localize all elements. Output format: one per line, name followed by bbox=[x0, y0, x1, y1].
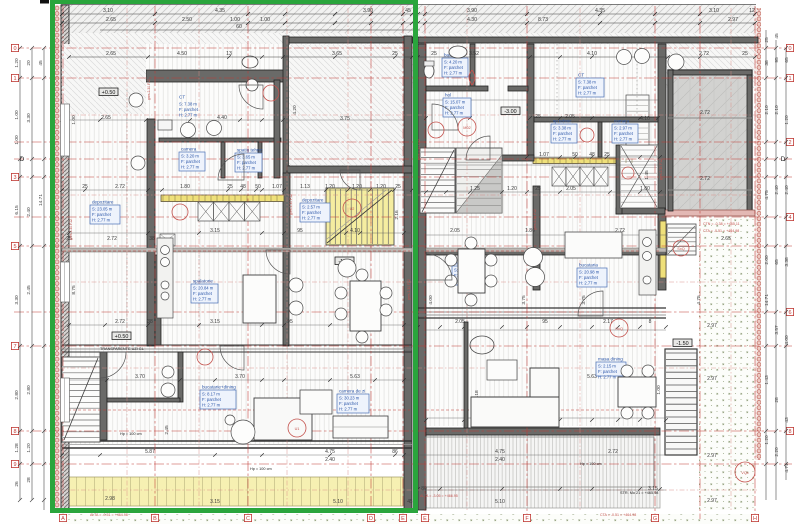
svg-text:S: 2.57 m: S: 2.57 m bbox=[302, 205, 320, 210]
svg-text:gres 2.30 F12: gres 2.30 F12 bbox=[289, 194, 293, 215]
svg-text:45: 45 bbox=[405, 8, 411, 14]
svg-text:45: 45 bbox=[774, 33, 780, 39]
svg-text:45: 45 bbox=[38, 60, 44, 66]
svg-text:G: G bbox=[653, 516, 657, 522]
svg-text:95: 95 bbox=[287, 319, 293, 325]
svg-text:25: 25 bbox=[82, 184, 88, 190]
svg-text:H: 2.77 m: H: 2.77 m bbox=[237, 166, 256, 171]
svg-text:depozitare: depozitare bbox=[302, 198, 324, 203]
svg-text:2.40: 2.40 bbox=[325, 457, 335, 463]
svg-text:65: 65 bbox=[784, 57, 790, 63]
svg-text:CTA = -0.51 = +464.98: CTA = -0.51 = +464.98 bbox=[703, 229, 739, 233]
svg-text:1.80: 1.80 bbox=[180, 184, 190, 190]
svg-text:3.30: 3.30 bbox=[26, 113, 32, 123]
svg-text:2.65: 2.65 bbox=[721, 236, 731, 242]
svg-text:H: 2.77 m: H: 2.77 m bbox=[202, 403, 221, 408]
svg-text:H: 2.77 m: H: 2.77 m bbox=[445, 111, 464, 116]
svg-text:1.00: 1.00 bbox=[230, 17, 240, 23]
svg-text:43: 43 bbox=[784, 417, 790, 423]
svg-text:14.71: 14.71 bbox=[764, 294, 770, 306]
svg-text:4.00: 4.00 bbox=[428, 295, 434, 305]
svg-text:1.00: 1.00 bbox=[71, 115, 77, 125]
svg-text:12: 12 bbox=[749, 8, 755, 14]
svg-text:86: 86 bbox=[392, 449, 398, 455]
svg-text:5.10: 5.10 bbox=[333, 499, 343, 505]
svg-text:4.35: 4.35 bbox=[215, 8, 225, 14]
svg-text:S: 7.38 m: S: 7.38 m bbox=[578, 80, 596, 85]
svg-text:1.20: 1.20 bbox=[376, 184, 386, 190]
svg-text:4.35: 4.35 bbox=[595, 8, 605, 14]
svg-text:H: H bbox=[753, 516, 757, 522]
svg-text:D: D bbox=[781, 156, 786, 163]
svg-text:gres 2.30 F12: gres 2.30 F12 bbox=[533, 209, 537, 230]
svg-text:S: 3.20 m: S: 3.20 m bbox=[181, 154, 199, 159]
svg-text:2.05: 2.05 bbox=[455, 319, 465, 325]
svg-text:S: 2.15 m: S: 2.15 m bbox=[598, 364, 616, 369]
svg-text:1.43: 1.43 bbox=[764, 375, 770, 385]
svg-text:1.00: 1.00 bbox=[14, 110, 20, 120]
svg-text:1.20: 1.20 bbox=[26, 443, 32, 453]
svg-text:2.72: 2.72 bbox=[700, 110, 710, 116]
svg-text:0: 0 bbox=[788, 46, 791, 52]
svg-text:2.10: 2.10 bbox=[774, 105, 780, 115]
svg-text:3.75: 3.75 bbox=[340, 116, 350, 122]
svg-text:4.71: 4.71 bbox=[784, 463, 790, 473]
svg-text:1.07: 1.07 bbox=[272, 184, 282, 190]
svg-text:3.15: 3.15 bbox=[210, 228, 220, 234]
svg-text:-3.00: -3.00 bbox=[504, 109, 516, 115]
svg-text:4.30: 4.30 bbox=[467, 17, 477, 23]
svg-text:25: 25 bbox=[764, 37, 770, 43]
svg-text:CTN = -0.38 = +465.11: CTN = -0.38 = +465.11 bbox=[703, 222, 740, 226]
svg-text:3.70: 3.70 bbox=[235, 374, 245, 380]
svg-text:2: 2 bbox=[788, 140, 791, 146]
svg-text:3.15: 3.15 bbox=[210, 499, 220, 505]
svg-text:hol: hol bbox=[445, 93, 451, 98]
svg-text:5: 5 bbox=[13, 244, 16, 250]
svg-text:3.15: 3.15 bbox=[210, 319, 220, 325]
svg-text:C: C bbox=[246, 516, 250, 522]
svg-text:5.10: 5.10 bbox=[495, 499, 505, 505]
svg-text:1.00: 1.00 bbox=[260, 17, 270, 23]
svg-text:U1: U1 bbox=[295, 427, 300, 431]
svg-text:masa dining: masa dining bbox=[598, 357, 623, 362]
svg-text:2.16: 2.16 bbox=[394, 210, 400, 220]
svg-text:S: 3.65 m: S: 3.65 m bbox=[237, 155, 255, 160]
svg-text:ALTA = -0.51 = +464.98: ALTA = -0.51 = +464.98 bbox=[90, 513, 128, 517]
svg-text:2.72: 2.72 bbox=[700, 176, 710, 182]
svg-text:20: 20 bbox=[26, 60, 32, 66]
svg-text:1: 1 bbox=[788, 76, 791, 82]
svg-text:26: 26 bbox=[14, 481, 20, 487]
svg-text:F: parchet: F: parchet bbox=[444, 65, 464, 70]
svg-text:H: 2.77 m: H: 2.77 m bbox=[579, 281, 598, 286]
svg-text:25: 25 bbox=[535, 114, 541, 120]
svg-text:+0.50: +0.50 bbox=[102, 90, 116, 96]
svg-text:0: 0 bbox=[13, 46, 16, 52]
svg-text:45: 45 bbox=[407, 499, 413, 505]
svg-text:25: 25 bbox=[395, 184, 401, 190]
svg-text:3.38: 3.38 bbox=[784, 257, 790, 267]
svg-text:4.10: 4.10 bbox=[350, 228, 360, 234]
svg-text:4.75: 4.75 bbox=[495, 449, 505, 455]
svg-text:F: parchet: F: parchet bbox=[578, 85, 598, 90]
svg-text:7: 7 bbox=[13, 344, 16, 350]
svg-text:S: 7.38 m: S: 7.38 m bbox=[179, 102, 197, 107]
svg-text:9: 9 bbox=[13, 462, 16, 468]
svg-text:D: D bbox=[369, 516, 373, 522]
svg-text:1.13: 1.13 bbox=[300, 184, 310, 190]
svg-text:38: 38 bbox=[149, 236, 155, 242]
svg-text:S: 20.98 m: S: 20.98 m bbox=[579, 270, 600, 275]
svg-text:4.00: 4.00 bbox=[784, 335, 790, 345]
svg-text:2.40: 2.40 bbox=[784, 185, 790, 195]
svg-text:8.75: 8.75 bbox=[71, 285, 77, 295]
svg-text:4.75: 4.75 bbox=[325, 449, 335, 455]
svg-text:2.98: 2.98 bbox=[105, 496, 115, 502]
svg-text:60: 60 bbox=[236, 24, 242, 30]
svg-text:F: parchet: F: parchet bbox=[179, 107, 199, 112]
svg-text:1.00: 1.00 bbox=[14, 135, 20, 145]
svg-text:-1.50: -1.50 bbox=[676, 341, 688, 347]
svg-text:S: 2.97 m: S: 2.97 m bbox=[614, 126, 632, 131]
svg-text:1.80: 1.80 bbox=[640, 186, 650, 192]
svg-text:1.20: 1.20 bbox=[14, 58, 20, 68]
svg-text:1.20: 1.20 bbox=[507, 186, 517, 192]
svg-text:2.20: 2.20 bbox=[774, 447, 780, 457]
svg-text:2.97: 2.97 bbox=[707, 453, 717, 459]
svg-text:8: 8 bbox=[13, 429, 16, 435]
svg-text:3.65: 3.65 bbox=[332, 51, 342, 57]
svg-text:ALTA = -3.05 = +466.95: ALTA = -3.05 = +466.95 bbox=[420, 494, 458, 498]
svg-text:camera: camera bbox=[181, 147, 197, 152]
svg-text:95: 95 bbox=[774, 57, 780, 63]
svg-text:4: 4 bbox=[788, 215, 791, 221]
svg-text:2.10: 2.10 bbox=[764, 105, 770, 115]
svg-text:F: parchet: F: parchet bbox=[614, 131, 634, 136]
svg-text:2.40: 2.40 bbox=[26, 207, 32, 217]
svg-text:F: parchet: F: parchet bbox=[181, 159, 201, 164]
svg-text:2.72: 2.72 bbox=[115, 184, 125, 190]
svg-text:25: 25 bbox=[392, 51, 398, 57]
svg-text:1.00: 1.00 bbox=[656, 385, 662, 395]
svg-text:gres 2.30 F12: gres 2.30 F12 bbox=[407, 279, 411, 300]
svg-text:F: parchet: F: parchet bbox=[339, 401, 359, 406]
svg-text:gres 2.30 F12: gres 2.30 F12 bbox=[659, 159, 663, 180]
svg-text:VQx: VQx bbox=[741, 471, 748, 475]
svg-text:U2: U2 bbox=[350, 207, 355, 211]
svg-text:E: E bbox=[401, 516, 405, 522]
svg-text:E: E bbox=[423, 516, 427, 522]
svg-text:2.97: 2.97 bbox=[707, 376, 717, 382]
svg-text:2.72: 2.72 bbox=[115, 319, 125, 325]
svg-text:80: 80 bbox=[421, 486, 427, 492]
svg-text:3.90: 3.90 bbox=[467, 8, 477, 14]
svg-text:S: 4.20 m: S: 4.20 m bbox=[444, 60, 462, 65]
svg-text:F: parchet: F: parchet bbox=[237, 160, 257, 165]
svg-text:8: 8 bbox=[788, 429, 791, 435]
svg-text:S: 30.23 m: S: 30.23 m bbox=[339, 396, 360, 401]
svg-text:gres 2.30 F12: gres 2.30 F12 bbox=[147, 79, 151, 100]
svg-text:3.30: 3.30 bbox=[14, 295, 20, 305]
svg-text:M02: M02 bbox=[463, 126, 470, 130]
svg-text:H: 2.77 m: H: 2.77 m bbox=[578, 91, 597, 96]
svg-text:1.20: 1.20 bbox=[764, 435, 770, 445]
svg-text:50: 50 bbox=[255, 184, 261, 190]
svg-text:F: parchet: F: parchet bbox=[598, 369, 618, 374]
svg-text:28: 28 bbox=[26, 477, 32, 483]
svg-text:STR. Mo 21 = +465.98: STR. Mo 21 = +465.98 bbox=[620, 491, 658, 495]
svg-text:H: 2.77 m: H: 2.77 m bbox=[614, 137, 633, 142]
svg-text:2.40: 2.40 bbox=[495, 457, 505, 463]
svg-text:8: 8 bbox=[649, 319, 652, 325]
svg-text:F: parchet: F: parchet bbox=[193, 291, 213, 296]
svg-text:F: parchet: F: parchet bbox=[579, 275, 599, 280]
svg-text:F: parchet: F: parchet bbox=[202, 397, 222, 402]
svg-text:bucatarie+dining: bucatarie+dining bbox=[202, 385, 236, 390]
svg-text:SxQ: SxQ bbox=[677, 247, 684, 251]
svg-text:2.00: 2.00 bbox=[764, 255, 770, 265]
svg-text:2.72: 2.72 bbox=[608, 449, 618, 455]
svg-text:3.10: 3.10 bbox=[709, 8, 719, 14]
svg-text:Hp = 100 cm: Hp = 100 cm bbox=[580, 462, 602, 466]
svg-text:H: 2.77 m: H: 2.77 m bbox=[92, 218, 111, 223]
svg-text:TRANSPARENTE UZI GL: TRANSPARENTE UZI GL bbox=[100, 347, 144, 351]
svg-text:4.20: 4.20 bbox=[292, 105, 298, 115]
svg-text:5.63: 5.63 bbox=[587, 374, 597, 380]
svg-text:5.63: 5.63 bbox=[350, 374, 360, 380]
svg-text:gres 2.30 F12: gres 2.30 F12 bbox=[69, 219, 73, 240]
svg-text:2.97: 2.97 bbox=[707, 498, 717, 504]
svg-text:4.10: 4.10 bbox=[587, 51, 597, 57]
svg-text:3.10: 3.10 bbox=[103, 8, 113, 14]
svg-text:bucataria: bucataria bbox=[579, 263, 598, 268]
svg-text:65: 65 bbox=[774, 259, 780, 265]
svg-text:4.40: 4.40 bbox=[217, 115, 227, 121]
svg-text:H: 2.77 m: H: 2.77 m bbox=[553, 137, 572, 142]
svg-text:13: 13 bbox=[226, 51, 232, 57]
svg-text:1.20: 1.20 bbox=[784, 115, 790, 125]
svg-text:H: 2.77 m: H: 2.77 m bbox=[444, 71, 463, 76]
svg-text:2.45: 2.45 bbox=[26, 285, 32, 295]
svg-text:2.05: 2.05 bbox=[450, 228, 460, 234]
svg-text:8.73: 8.73 bbox=[538, 17, 548, 23]
svg-text:CT: CT bbox=[578, 73, 584, 78]
svg-text:+0.50: +0.50 bbox=[115, 334, 129, 340]
svg-text:2.80: 2.80 bbox=[26, 385, 32, 395]
svg-text:1.45: 1.45 bbox=[644, 170, 650, 180]
svg-text:4.10: 4.10 bbox=[640, 116, 650, 122]
svg-text:camara: camara bbox=[614, 119, 630, 124]
svg-text:1.28: 1.28 bbox=[14, 443, 20, 453]
svg-text:2.17: 2.17 bbox=[603, 319, 613, 325]
svg-text:2.40: 2.40 bbox=[774, 185, 780, 195]
svg-text:F: parchet: F: parchet bbox=[92, 212, 112, 217]
svg-text:2.65: 2.65 bbox=[106, 17, 116, 23]
svg-text:3.70: 3.70 bbox=[135, 374, 145, 380]
svg-text:95: 95 bbox=[542, 319, 548, 325]
svg-text:25: 25 bbox=[742, 51, 748, 57]
svg-text:A: A bbox=[61, 516, 65, 522]
svg-text:Hp = 100 cm: Hp = 100 cm bbox=[120, 432, 142, 436]
svg-text:2.97: 2.97 bbox=[707, 323, 717, 329]
svg-text:F: parchet: F: parchet bbox=[553, 131, 573, 136]
svg-text:14.71: 14.71 bbox=[38, 194, 44, 206]
svg-text:D: D bbox=[20, 156, 25, 163]
svg-text:H: 2.77 m: H: 2.77 m bbox=[181, 165, 200, 170]
svg-text:spatiu tehnic: spatiu tehnic bbox=[237, 148, 263, 153]
svg-text:F: parchet: F: parchet bbox=[302, 210, 322, 215]
svg-text:S: 8.17 m: S: 8.17 m bbox=[202, 392, 220, 397]
svg-text:2.72: 2.72 bbox=[107, 236, 117, 242]
svg-text:spalatorie: spalatorie bbox=[193, 279, 213, 284]
svg-text:28: 28 bbox=[774, 397, 780, 403]
svg-text:2.05: 2.05 bbox=[566, 186, 576, 192]
svg-text:3.52: 3.52 bbox=[469, 51, 479, 57]
svg-text:6: 6 bbox=[788, 310, 791, 316]
svg-text:3.90: 3.90 bbox=[363, 8, 373, 14]
svg-text:4.75: 4.75 bbox=[764, 190, 770, 200]
svg-text:Hp = 100 cm: Hp = 100 cm bbox=[250, 467, 272, 471]
svg-text:S: 3.38 m: S: 3.38 m bbox=[553, 126, 571, 131]
svg-text:1.25: 1.25 bbox=[470, 186, 480, 192]
svg-text:3.75: 3.75 bbox=[521, 295, 527, 305]
svg-text:5.87: 5.87 bbox=[145, 449, 155, 455]
svg-text:CTA = -0.51 = +464.98: CTA = -0.51 = +464.98 bbox=[600, 513, 636, 517]
svg-text:1: 1 bbox=[13, 76, 16, 82]
svg-text:depozitare: depozitare bbox=[92, 200, 114, 205]
svg-text:S: 20.84 m: S: 20.84 m bbox=[193, 286, 214, 291]
svg-text:3: 3 bbox=[13, 175, 16, 181]
svg-text:CT: CT bbox=[179, 95, 185, 100]
svg-text:2.80: 2.80 bbox=[14, 390, 20, 400]
svg-text:48: 48 bbox=[240, 184, 246, 190]
svg-text:2.65: 2.65 bbox=[106, 51, 116, 57]
svg-text:25: 25 bbox=[431, 51, 437, 57]
svg-text:2.65: 2.65 bbox=[101, 115, 111, 121]
svg-text:sp tehnic: sp tehnic bbox=[553, 119, 572, 124]
svg-text:2.50: 2.50 bbox=[182, 17, 192, 23]
svg-text:OxQ: OxQ bbox=[615, 327, 623, 331]
svg-text:S: 15.07 m: S: 15.07 m bbox=[445, 100, 466, 105]
svg-text:H: 2.77 m: H: 2.77 m bbox=[193, 297, 212, 302]
svg-text:S: 23.05 m: S: 23.05 m bbox=[92, 207, 113, 212]
svg-text:25: 25 bbox=[227, 184, 233, 190]
svg-text:camera de zi: camera de zi bbox=[339, 389, 365, 394]
svg-text:4.50: 4.50 bbox=[177, 51, 187, 57]
svg-text:2.97: 2.97 bbox=[728, 17, 738, 23]
svg-text:4.75: 4.75 bbox=[696, 295, 702, 305]
svg-text:H: 2.77 m: H: 2.77 m bbox=[179, 113, 198, 118]
svg-text:H: 2.77 m: H: 2.77 m bbox=[339, 407, 358, 412]
svg-text:2.45: 2.45 bbox=[164, 425, 170, 435]
svg-text:H: 2.77 m: H: 2.77 m bbox=[302, 216, 321, 221]
svg-text:95: 95 bbox=[297, 228, 303, 234]
svg-text:3.57: 3.57 bbox=[774, 325, 780, 335]
svg-text:H: 2.77 m: H: 2.77 m bbox=[598, 375, 617, 380]
svg-text:25: 25 bbox=[535, 186, 541, 192]
svg-text:38: 38 bbox=[764, 60, 770, 66]
svg-text:6.15: 6.15 bbox=[14, 205, 20, 215]
svg-text:38: 38 bbox=[147, 319, 153, 325]
svg-text:B: B bbox=[153, 516, 157, 522]
